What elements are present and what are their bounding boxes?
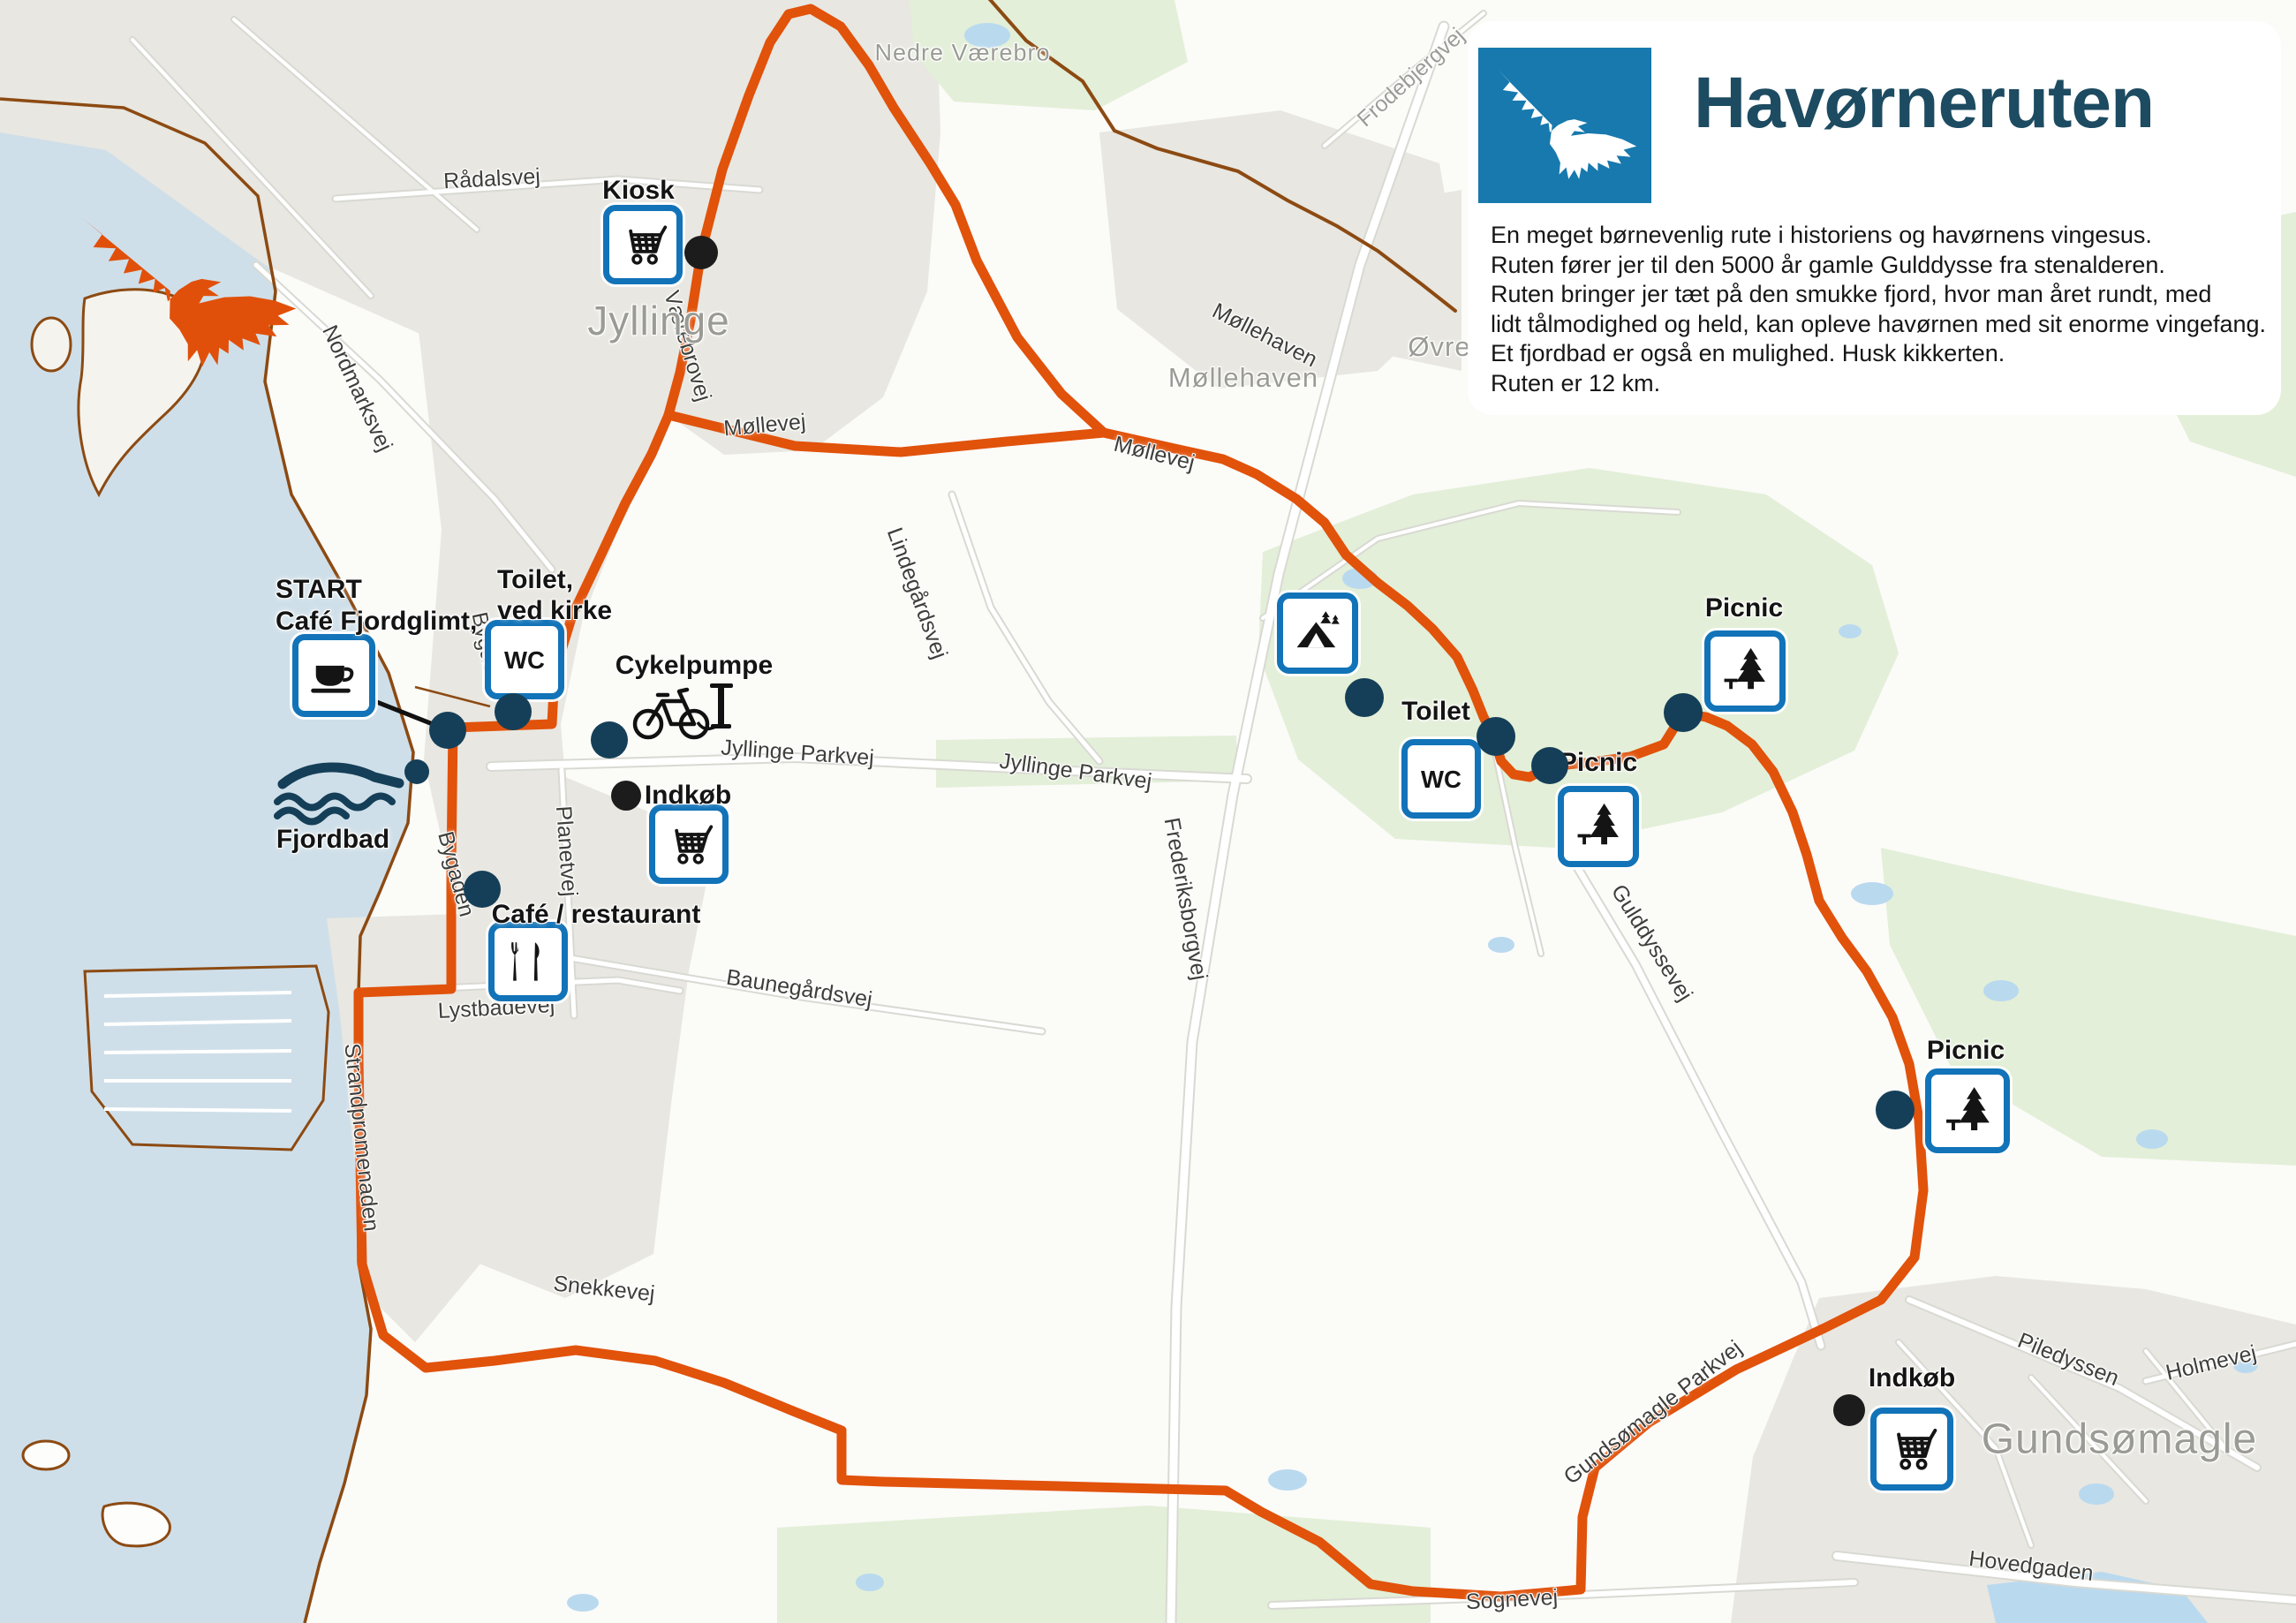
description-line: Ruten er 12 km. [1491,369,2266,399]
route-title: Havørneruten [1694,62,2154,145]
description-line: Ruten fører jer til den 5000 år gamle Gu… [1491,251,2266,281]
description-line: En meget børnevenlig rute i historiens o… [1491,221,2266,251]
description-line: Et fjordbad er også en mulighed. Husk ki… [1491,339,2266,369]
info-panel: Havørneruten En meget børnevenlig rute i… [1468,21,2281,415]
eagle-logo-icon [1489,57,1641,194]
map-canvas: RådalsvejNordmarksvejVærebrovejMøllevejM… [0,0,2296,1623]
description-line: Ruten bringer jer tæt på den smukke fjor… [1491,280,2266,310]
description-line: lidt tålmodighed og held, kan opleve hav… [1491,310,2266,340]
route-description: En meget børnevenlig rute i historiens o… [1491,221,2266,398]
route-logo [1478,48,1651,203]
bike-pump-icon [635,683,733,737]
